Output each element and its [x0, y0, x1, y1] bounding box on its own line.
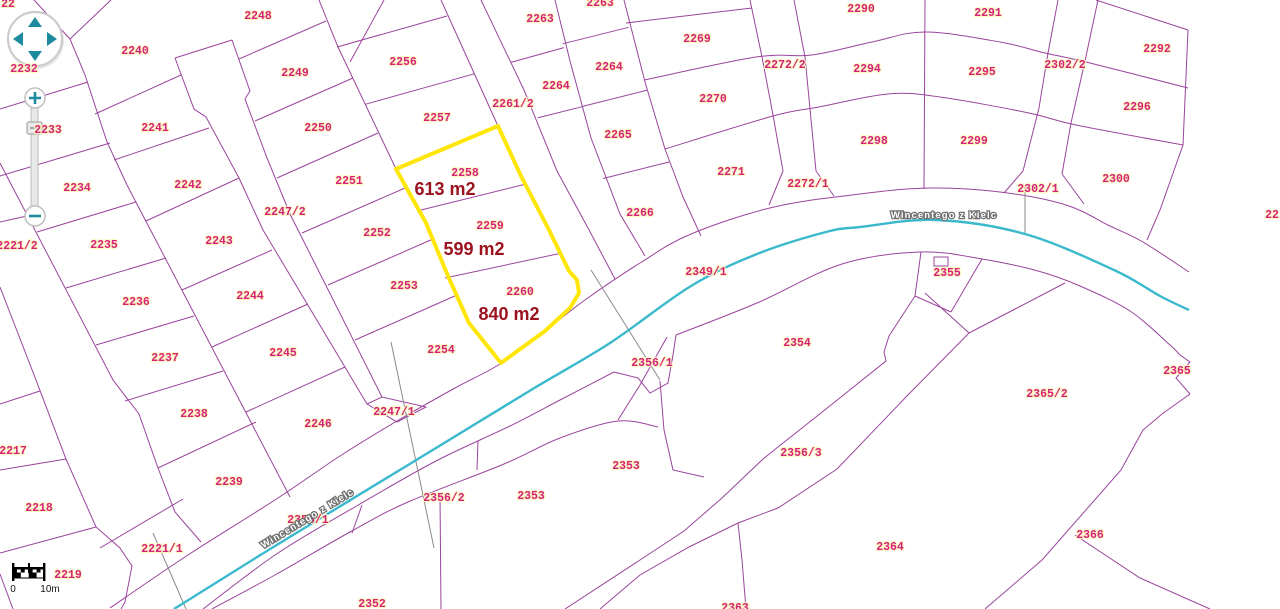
- svg-text:2352: 2352: [358, 598, 386, 609]
- svg-text:2239: 2239: [215, 476, 243, 489]
- svg-text:2272/1: 2272/1: [787, 178, 829, 191]
- svg-text:2237: 2237: [151, 352, 179, 365]
- svg-text:2263: 2263: [526, 13, 554, 26]
- svg-text:2247/2: 2247/2: [264, 206, 306, 219]
- svg-text:613 m2: 613 m2: [414, 179, 475, 199]
- svg-text:2365: 2365: [1163, 365, 1191, 378]
- svg-text:2250: 2250: [304, 122, 332, 135]
- svg-text:2269: 2269: [683, 33, 711, 46]
- svg-text:2263: 2263: [586, 0, 614, 10]
- svg-text:2353: 2353: [612, 460, 640, 473]
- svg-text:2218: 2218: [25, 502, 53, 515]
- svg-text:2272/2: 2272/2: [764, 59, 806, 72]
- svg-text:2298: 2298: [860, 135, 888, 148]
- svg-text:2251: 2251: [335, 175, 363, 188]
- svg-text:2246: 2246: [304, 418, 332, 431]
- svg-text:2266: 2266: [626, 207, 654, 220]
- svg-text:10m: 10m: [40, 584, 59, 595]
- svg-text:2302/1: 2302/1: [1017, 183, 1059, 196]
- svg-text:840 m2: 840 m2: [478, 304, 539, 324]
- svg-text:2256: 2256: [389, 56, 417, 69]
- svg-text:2264: 2264: [595, 61, 623, 74]
- svg-text:2261/2: 2261/2: [492, 98, 534, 111]
- svg-text:2244: 2244: [236, 290, 264, 303]
- svg-text:2265: 2265: [604, 129, 632, 142]
- svg-text:2271: 2271: [717, 166, 745, 179]
- svg-text:2243: 2243: [205, 235, 233, 248]
- svg-text:2221/1: 2221/1: [141, 543, 183, 556]
- svg-text:2292: 2292: [1143, 43, 1171, 56]
- svg-text:2264: 2264: [542, 80, 570, 93]
- svg-text:2235: 2235: [90, 239, 118, 252]
- svg-text:2356/3: 2356/3: [780, 447, 822, 460]
- svg-text:2247/1: 2247/1: [373, 406, 415, 419]
- svg-text:2252: 2252: [363, 227, 391, 240]
- svg-text:2236: 2236: [122, 296, 150, 309]
- svg-text:2253: 2253: [390, 280, 418, 293]
- svg-text:2241: 2241: [141, 122, 169, 135]
- svg-text:2355: 2355: [933, 267, 961, 280]
- svg-text:2353: 2353: [517, 490, 545, 503]
- svg-text:2242: 2242: [174, 179, 202, 192]
- svg-text:2299: 2299: [960, 135, 988, 148]
- svg-text:2260: 2260: [506, 286, 534, 299]
- svg-text:2249: 2249: [281, 67, 309, 80]
- svg-text:599 m2: 599 m2: [443, 239, 504, 259]
- svg-text:2354: 2354: [783, 337, 811, 350]
- svg-text:2245: 2245: [269, 347, 297, 360]
- svg-text:2294: 2294: [853, 63, 881, 76]
- svg-text:22: 22: [1, 0, 15, 11]
- svg-text:2364: 2364: [876, 541, 904, 554]
- svg-text:2366: 2366: [1076, 529, 1104, 542]
- svg-text:Wincentego z Kielc: Wincentego z Kielc: [891, 210, 997, 221]
- svg-text:2356/2: 2356/2: [423, 492, 465, 505]
- svg-text:2233: 2233: [34, 124, 62, 137]
- svg-text:2270: 2270: [699, 93, 727, 106]
- svg-text:2254: 2254: [427, 344, 455, 357]
- svg-text:2219: 2219: [54, 569, 82, 582]
- svg-text:2221/2: 2221/2: [0, 240, 38, 253]
- svg-text:2238: 2238: [180, 408, 208, 421]
- svg-text:22: 22: [1265, 209, 1279, 222]
- svg-text:2240: 2240: [121, 45, 149, 58]
- svg-text:2365/2: 2365/2: [1026, 388, 1068, 401]
- svg-text:2291: 2291: [974, 7, 1002, 20]
- svg-text:2259: 2259: [476, 220, 504, 233]
- svg-text:2349/1: 2349/1: [685, 266, 727, 279]
- svg-text:2290: 2290: [847, 3, 875, 16]
- svg-text:2302/2: 2302/2: [1044, 59, 1086, 72]
- svg-text:2363: 2363: [721, 602, 749, 609]
- svg-text:2257: 2257: [423, 112, 451, 125]
- svg-text:2248: 2248: [244, 10, 272, 23]
- svg-text:2295: 2295: [968, 66, 996, 79]
- svg-text:2234: 2234: [63, 182, 91, 195]
- svg-text:0: 0: [10, 584, 16, 595]
- svg-text:2356/1: 2356/1: [631, 357, 673, 370]
- svg-text:2296: 2296: [1123, 101, 1151, 114]
- svg-text:2300: 2300: [1102, 173, 1130, 186]
- svg-text:2217: 2217: [0, 445, 27, 458]
- svg-text:2232: 2232: [10, 63, 38, 76]
